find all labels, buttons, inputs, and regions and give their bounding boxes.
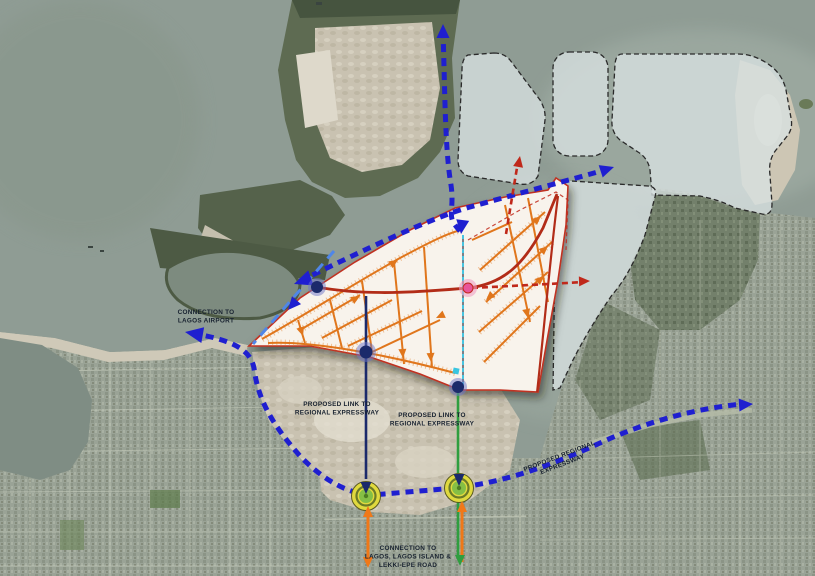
label-line: LEKKI-EPE ROAD bbox=[379, 562, 437, 569]
label-line: REGIONAL EXPRESSWAY bbox=[390, 421, 475, 428]
parcel-middle bbox=[553, 52, 608, 156]
map-canvas: CONNECTION TO LAGOS AIRPORT PROPOSED LIN… bbox=[0, 0, 815, 576]
label-line: PROPOSED LINK TO bbox=[398, 412, 465, 419]
label-line: PROPOSED LINK TO bbox=[303, 401, 370, 408]
label-link-left: PROPOSED LINK TO REGIONAL EXPRESSWAY bbox=[295, 401, 380, 417]
label-line: CONNECTION TO bbox=[380, 545, 437, 552]
label-line: LAGOS AIRPORT bbox=[178, 318, 234, 325]
label-line: CONNECTION TO bbox=[178, 309, 235, 316]
label-line: LAGOS, LAGOS ISLAND & bbox=[365, 554, 451, 561]
cyan-marker bbox=[452, 367, 459, 374]
label-line: REGIONAL EXPRESSWAY bbox=[295, 410, 380, 417]
label-connection-airport: CONNECTION TO LAGOS AIRPORT bbox=[178, 309, 235, 325]
label-link-right: PROPOSED LINK TO REGIONAL EXPRESSWAY bbox=[390, 412, 475, 428]
masterplan-map: CONNECTION TO LAGOS AIRPORT PROPOSED LIN… bbox=[0, 0, 815, 576]
